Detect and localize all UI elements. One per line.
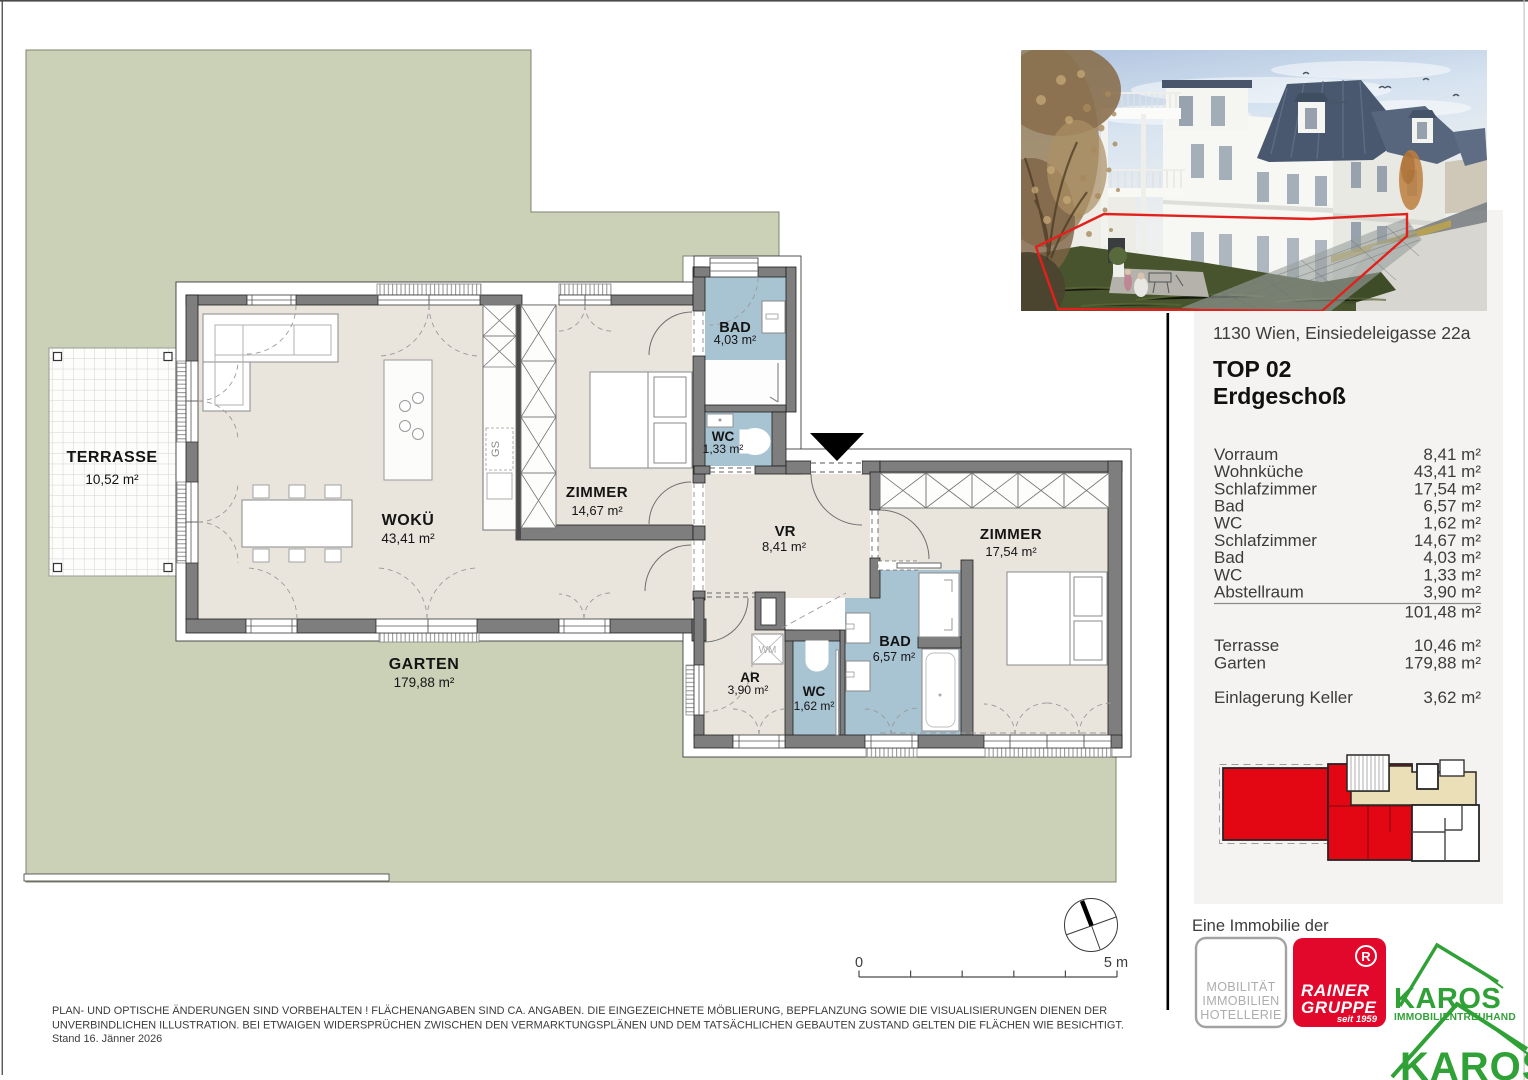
svg-text:Wohnküche: Wohnküche xyxy=(1214,462,1303,481)
svg-text:6,57 m²: 6,57 m² xyxy=(873,650,915,664)
svg-text:4,03 m²: 4,03 m² xyxy=(1423,548,1481,567)
svg-text:R: R xyxy=(1361,949,1371,964)
svg-text:Einlagerung Keller: Einlagerung Keller xyxy=(1214,688,1353,707)
svg-text:BAD: BAD xyxy=(879,634,910,650)
svg-text:TERRASSE: TERRASSE xyxy=(66,449,157,466)
svg-text:IMMOBILIEN: IMMOBILIEN xyxy=(1202,994,1279,1008)
svg-text:43,41 m²: 43,41 m² xyxy=(1414,462,1481,481)
svg-text:WOKÜ: WOKÜ xyxy=(382,510,435,529)
svg-text:WM: WM xyxy=(759,645,777,656)
svg-text:IMMOBILIENTREUHAND: IMMOBILIENTREUHAND xyxy=(1394,1012,1516,1023)
svg-text:Abstellraum: Abstellraum xyxy=(1214,583,1304,602)
svg-text:GARTEN: GARTEN xyxy=(389,656,460,673)
svg-text:KAROS: KAROS xyxy=(1394,983,1501,1015)
svg-text:MOBILITÄT: MOBILITÄT xyxy=(1206,980,1275,994)
svg-text:1,62 m²: 1,62 m² xyxy=(794,699,835,713)
svg-text:seit 1959: seit 1959 xyxy=(1337,1014,1378,1025)
svg-text:VR: VR xyxy=(775,523,796,540)
svg-text:HOTELLERIE: HOTELLERIE xyxy=(1200,1008,1281,1022)
svg-text:0: 0 xyxy=(855,955,863,971)
svg-text:101,48 m²: 101,48 m² xyxy=(1404,603,1481,622)
svg-text:1130 Wien, Einsiedeleigasse 22: 1130 Wien, Einsiedeleigasse 22a xyxy=(1213,323,1471,343)
svg-text:ZIMMER: ZIMMER xyxy=(980,526,1042,543)
svg-text:10,52 m²: 10,52 m² xyxy=(85,472,139,487)
svg-text:Stand 16. Jänner 2026: Stand 16. Jänner 2026 xyxy=(52,1033,162,1045)
svg-text:Eine Immobilie der: Eine Immobilie der xyxy=(1192,917,1329,935)
svg-text:3,62 m²: 3,62 m² xyxy=(1423,688,1481,707)
svg-text:4,03 m²: 4,03 m² xyxy=(714,333,756,347)
svg-text:Garten: Garten xyxy=(1214,654,1266,673)
svg-text:WC: WC xyxy=(803,684,826,699)
svg-text:WC: WC xyxy=(1214,514,1242,533)
svg-text:ZIMMER: ZIMMER xyxy=(566,484,628,501)
svg-text:3,90 m²: 3,90 m² xyxy=(728,683,769,697)
svg-text:Erdgeschoß: Erdgeschoß xyxy=(1213,383,1346,409)
svg-text:43,41 m²: 43,41 m² xyxy=(381,531,435,546)
svg-text:14,67 m²: 14,67 m² xyxy=(571,503,623,518)
svg-text:179,88 m²: 179,88 m² xyxy=(1404,654,1481,673)
svg-text:PLAN- UND OPTISCHE ÄNDERUNGEN: PLAN- UND OPTISCHE ÄNDERUNGEN SIND VORBE… xyxy=(52,1005,1107,1017)
svg-text:17,54 m²: 17,54 m² xyxy=(985,544,1037,559)
svg-text:Bad: Bad xyxy=(1214,548,1244,567)
svg-text:10,46 m²: 10,46 m² xyxy=(1414,636,1481,655)
svg-text:Terrasse: Terrasse xyxy=(1214,636,1279,655)
svg-text:TOP 02: TOP 02 xyxy=(1213,356,1291,382)
svg-text:GS: GS xyxy=(490,441,502,457)
svg-text:1,33 m²: 1,33 m² xyxy=(703,442,744,456)
svg-text:179,88 m²: 179,88 m² xyxy=(394,675,455,690)
svg-text:KAROS: KAROS xyxy=(1400,1045,1528,1080)
svg-text:1,62 m²: 1,62 m² xyxy=(1423,514,1481,533)
svg-text:3,90 m²: 3,90 m² xyxy=(1423,583,1481,602)
svg-text:5 m: 5 m xyxy=(1104,955,1128,971)
svg-text:UNVERBINDLICHEN ILLUSTRATION.: UNVERBINDLICHEN ILLUSTRATION. BEI ETWAIG… xyxy=(52,1020,1124,1032)
svg-text:8,41 m²: 8,41 m² xyxy=(762,539,807,554)
